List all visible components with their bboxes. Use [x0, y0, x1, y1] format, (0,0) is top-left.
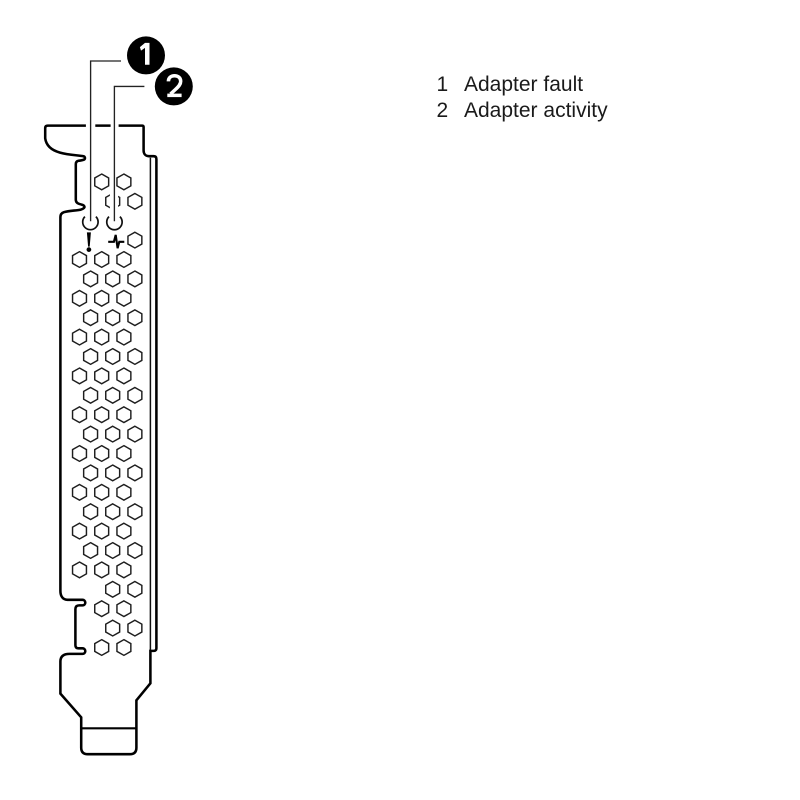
svg-text:Adapter activity: Adapter activity [464, 99, 608, 122]
svg-text:2: 2 [437, 99, 449, 122]
svg-text:1: 1 [437, 73, 449, 96]
svg-text:Adapter fault: Adapter fault [464, 73, 583, 96]
